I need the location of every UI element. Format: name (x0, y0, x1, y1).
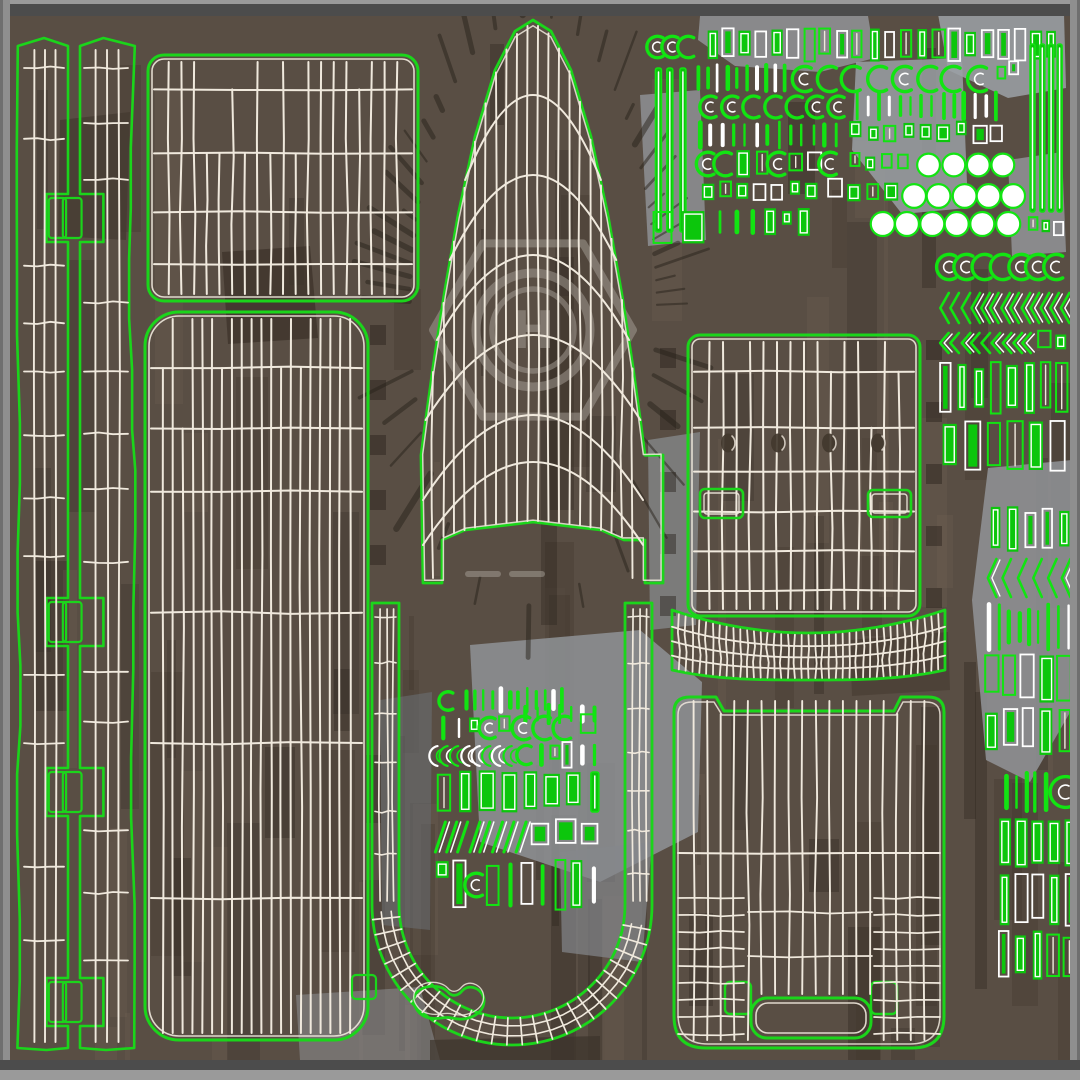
uv-island-band (902, 184, 1025, 208)
texture-tick (660, 596, 676, 616)
wood-grain-streak (856, 822, 881, 1080)
texture-tick (926, 588, 942, 608)
wood-grain-streak (286, 48, 318, 178)
wood-grain-streak (937, 515, 953, 588)
wood-grain-streak (176, 505, 194, 648)
uv-island-band (655, 68, 685, 232)
texture-tick (370, 435, 386, 455)
texture-tick (370, 325, 386, 345)
texture-tick (660, 410, 676, 430)
texture-tick (660, 348, 676, 368)
wood-grain-streak (907, 383, 913, 445)
uv-island-band (591, 772, 599, 812)
texture-tick (926, 526, 942, 546)
wood-grain-streak (334, 669, 352, 731)
uv-island-band (999, 818, 1076, 867)
wood-grain-streak (964, 662, 976, 819)
texture-tick (370, 490, 386, 510)
wood-grain-streak (832, 190, 847, 268)
texture-patch (430, 1036, 600, 1062)
frame-top (0, 4, 1080, 16)
uv-island-band (438, 770, 581, 812)
wood-grain-streak (134, 553, 141, 817)
frame-top-highlight (0, 0, 1080, 4)
wood-grain-streak (69, 260, 96, 512)
wood-grain-streak (499, 391, 511, 477)
texture-patch (222, 246, 318, 344)
wood-grain-streak (212, 847, 228, 1080)
texture-tick (370, 380, 386, 400)
uv-atlas-image: H (0, 0, 1080, 1080)
wood-grain-streak (809, 839, 839, 892)
wood-grain-streak (916, 745, 937, 1006)
texture-tick (370, 545, 386, 565)
texture-tick (926, 464, 942, 484)
frame-bottom-highlight (0, 1070, 1080, 1080)
wood-grain-streak (409, 616, 414, 690)
wood-grain-streak (63, 570, 77, 768)
frame-bottom (0, 1060, 1080, 1070)
cab-panel (688, 335, 920, 616)
texture-atlas-viewport: H (0, 0, 1080, 1080)
